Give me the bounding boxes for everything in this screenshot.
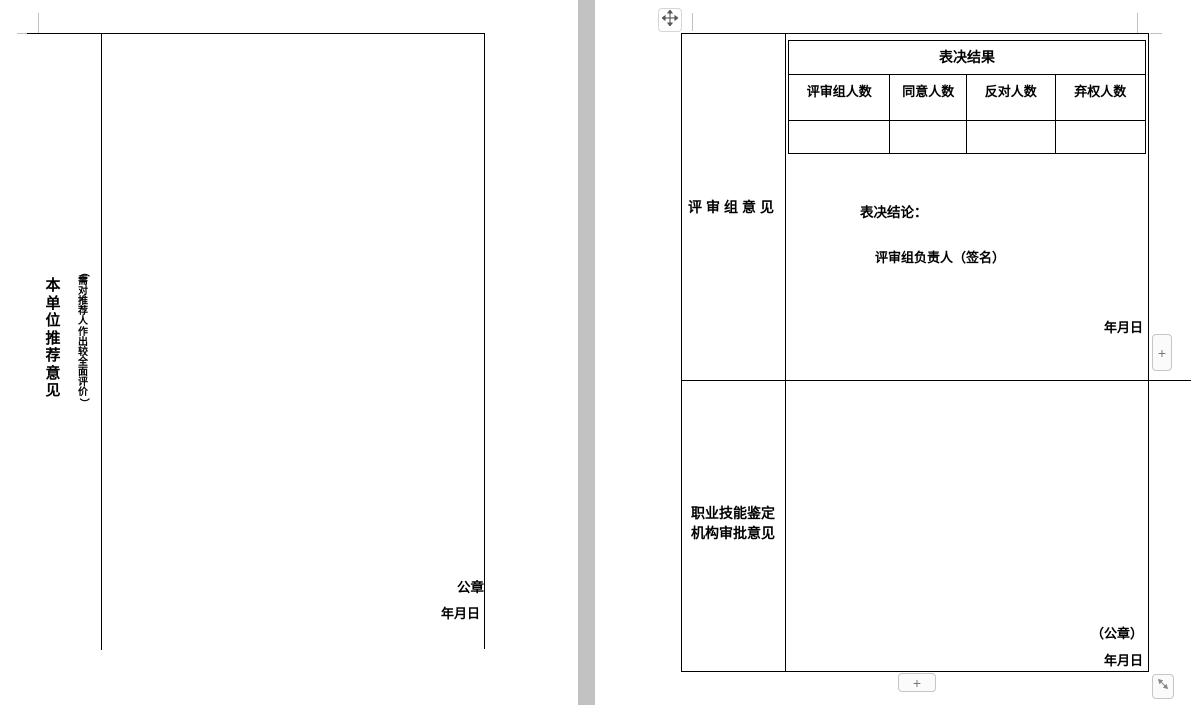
signer-label: 评审组负责人（签名） bbox=[875, 247, 1005, 266]
vote-table-value-row bbox=[789, 121, 1145, 153]
left-table-column-divider bbox=[101, 33, 102, 650]
left-table-right-border bbox=[484, 33, 485, 649]
insert-row-bottom-button[interactable]: + bbox=[898, 673, 936, 692]
approval-row-label-line1: 职业技能鉴定 bbox=[681, 503, 785, 523]
margin-mark bbox=[692, 13, 693, 31]
left-date-label: 年月日 bbox=[441, 603, 480, 622]
table-move-handle[interactable] bbox=[658, 8, 682, 32]
move-cross-icon bbox=[662, 10, 678, 31]
left-row-label-note: （需对推荐人作出较全面评价） bbox=[76, 267, 90, 408]
review-date-label: 年月日 bbox=[1104, 317, 1143, 336]
approval-seal-label: （公章） bbox=[1091, 623, 1143, 642]
page-right: 表决结果 评审组人数 同意人数 反对人数 弃权人数 评审组意见 表决结论： 评审… bbox=[595, 0, 1200, 705]
vote-table: 表决结果 评审组人数 同意人数 反对人数 弃权人数 bbox=[788, 40, 1146, 154]
insert-row-right-button[interactable]: + bbox=[1152, 334, 1172, 371]
vote-value-cell[interactable] bbox=[1056, 121, 1145, 153]
right-row-divider bbox=[681, 380, 1191, 381]
approval-row-label-line2: 机构审批意见 bbox=[681, 523, 785, 543]
approval-row-label: 职业技能鉴定 机构审批意见 bbox=[681, 503, 785, 543]
right-label-column-divider bbox=[785, 33, 786, 672]
vote-value-cell[interactable] bbox=[789, 121, 890, 153]
left-row-label: 本单位推荐意见 bbox=[44, 277, 62, 400]
page-divider bbox=[578, 0, 595, 705]
left-table-top-border bbox=[27, 33, 484, 34]
margin-mark bbox=[1137, 13, 1138, 33]
vote-col-header: 弃权人数 bbox=[1056, 75, 1145, 120]
vote-col-header: 同意人数 bbox=[890, 75, 967, 120]
plus-icon: + bbox=[1158, 346, 1166, 360]
margin-mark bbox=[17, 33, 27, 34]
vote-col-header: 反对人数 bbox=[967, 75, 1056, 120]
vote-table-header-row: 评审组人数 同意人数 反对人数 弃权人数 bbox=[789, 75, 1145, 121]
document-canvas: 本单位推荐意见 （需对推荐人作出较全面评价） 公章 年月日 表决结果 评审组人数… bbox=[0, 0, 1200, 705]
page-left: 本单位推荐意见 （需对推荐人作出较全面评价） 公章 年月日 bbox=[0, 0, 578, 705]
approval-date-label: 年月日 bbox=[1104, 650, 1143, 669]
vote-col-header: 评审组人数 bbox=[789, 75, 890, 120]
vote-conclusion-label: 表决结论： bbox=[860, 201, 928, 221]
plus-icon: + bbox=[913, 676, 921, 690]
vote-value-cell[interactable] bbox=[890, 121, 967, 153]
margin-mark bbox=[38, 13, 39, 33]
left-seal-label: 公章 bbox=[457, 576, 484, 596]
review-row-label: 评审组意见 bbox=[681, 197, 785, 217]
vote-table-title: 表决结果 bbox=[789, 41, 1145, 75]
resize-diagonal-icon bbox=[1156, 677, 1170, 696]
margin-mark bbox=[1150, 33, 1162, 34]
vote-value-cell[interactable] bbox=[967, 121, 1056, 153]
table-resize-handle[interactable] bbox=[1152, 674, 1174, 699]
